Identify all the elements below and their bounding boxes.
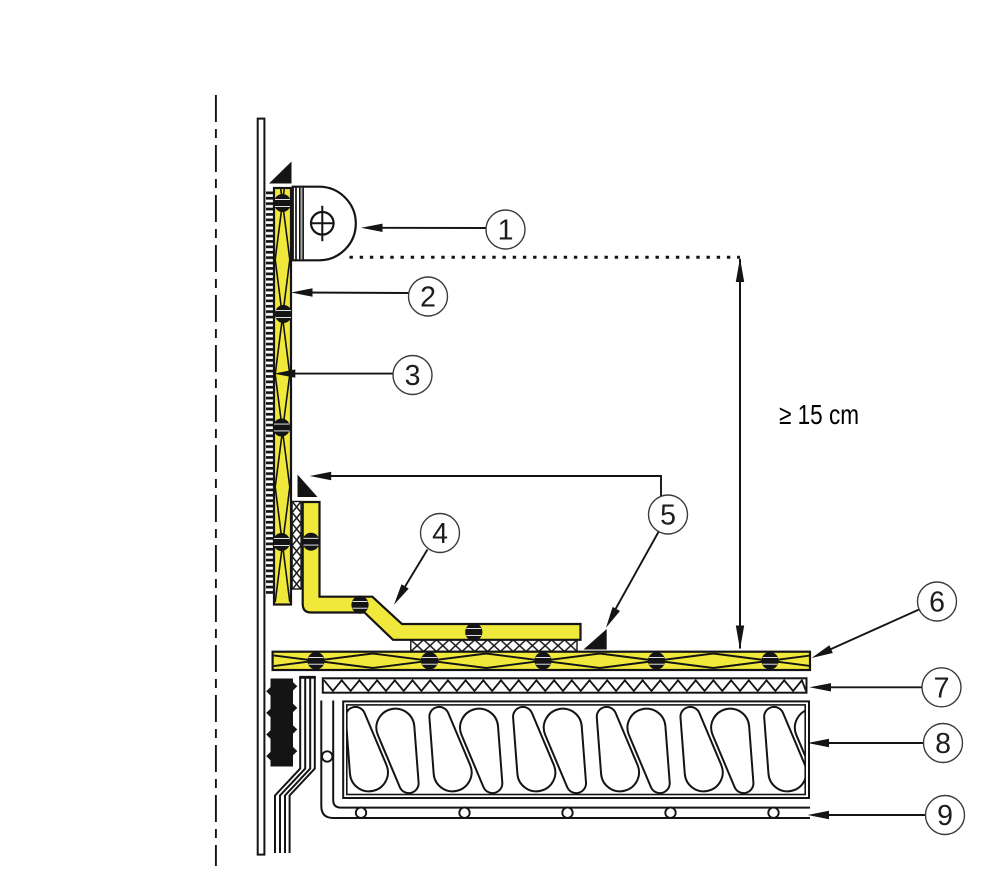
svg-text:9: 9 [937,800,953,832]
svg-text:≥ 15 cm: ≥ 15 cm [779,399,859,430]
svg-text:2: 2 [420,282,436,314]
svg-text:6: 6 [929,587,945,619]
svg-text:7: 7 [934,672,950,704]
svg-text:4: 4 [432,518,448,550]
svg-text:1: 1 [498,215,514,247]
svg-text:8: 8 [935,728,951,760]
svg-text:5: 5 [660,500,676,532]
svg-text:3: 3 [405,360,421,392]
